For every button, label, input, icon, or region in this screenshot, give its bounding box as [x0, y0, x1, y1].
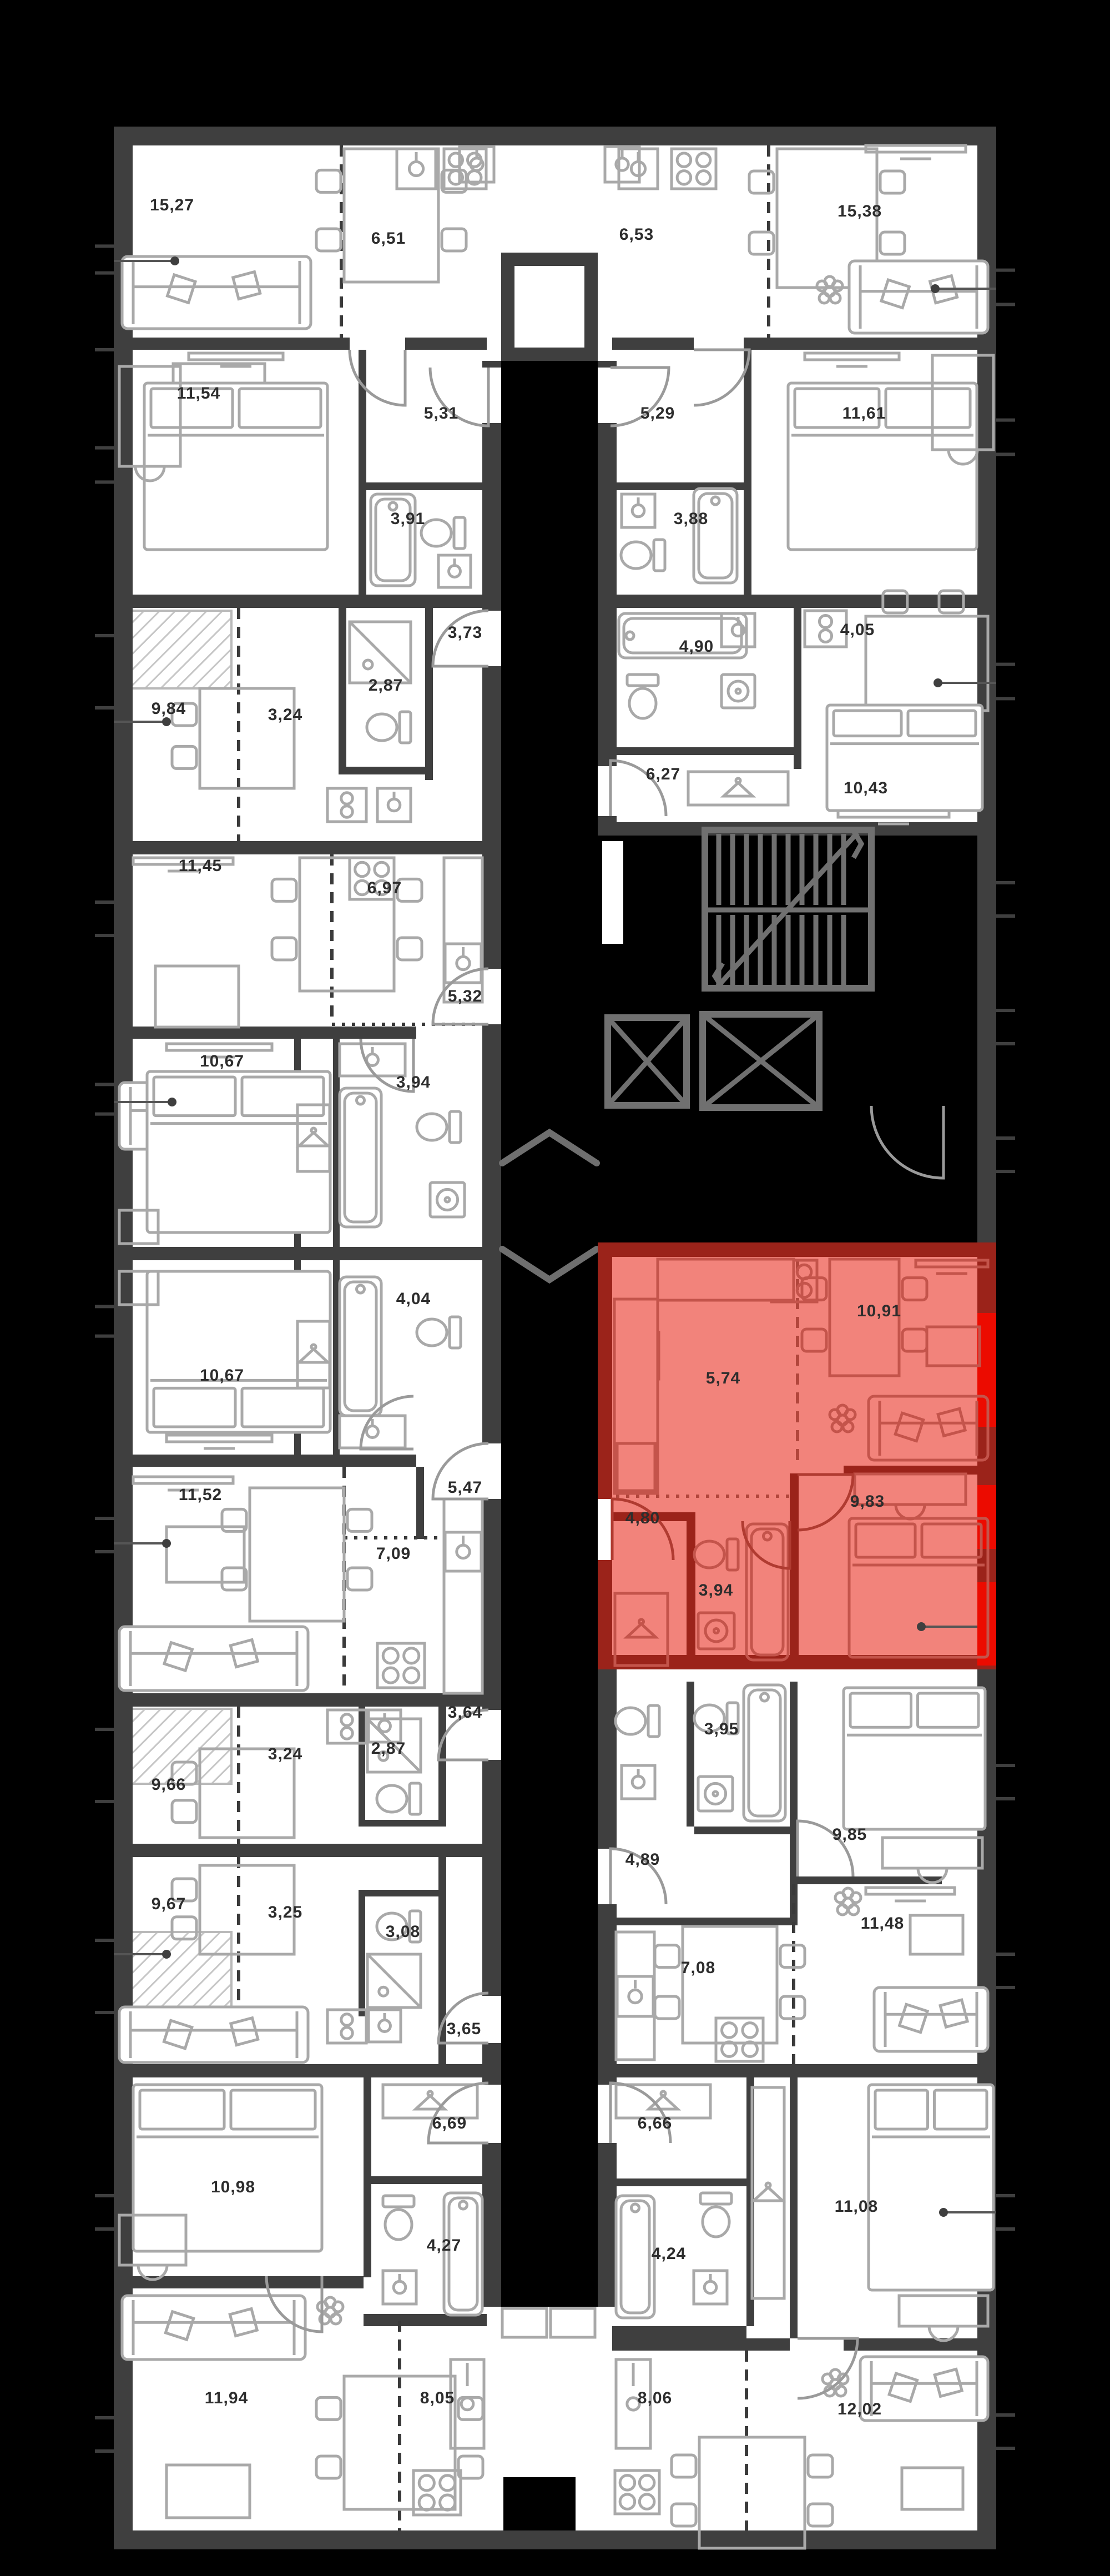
room-area-label: 10,43 — [844, 779, 888, 798]
room-area-label: 4,27 — [427, 2236, 461, 2255]
room-area-label: 5,31 — [424, 404, 458, 423]
room-area-label: 5,32 — [448, 987, 482, 1006]
room-area-label: 4,04 — [396, 1290, 431, 1309]
room-area-label: 5,47 — [448, 1478, 482, 1497]
highlighted-apartment[interactable] — [598, 1242, 996, 1668]
room-area-label: 6,27 — [646, 765, 680, 784]
room-area-label: 3,24 — [268, 1745, 302, 1764]
room-area-label: 3,65 — [447, 2020, 481, 2039]
room-area-label: 10,67 — [200, 1052, 244, 1071]
room-area-label: 9,67 — [152, 1895, 186, 1914]
room-area-label: 10,67 — [200, 1366, 244, 1385]
room-area-label: 2,87 — [369, 676, 403, 695]
room-area-label: 11,52 — [179, 1486, 222, 1505]
room-area-label: 2,87 — [371, 1739, 406, 1758]
room-area-label: 6,53 — [619, 225, 654, 244]
room-area-label: 11,48 — [861, 1914, 904, 1933]
room-area-label: 9,85 — [833, 1825, 867, 1844]
room-area-label: 7,09 — [376, 1544, 411, 1563]
room-area-label: 3,88 — [674, 510, 708, 529]
room-area-label: 10,98 — [211, 2178, 255, 2197]
room-area-label: 11,61 — [842, 404, 886, 423]
room-area-label: 9,84 — [152, 700, 186, 718]
room-area-label: 6,51 — [371, 229, 406, 248]
room-area-label: 12,02 — [837, 2400, 882, 2419]
room-area-label: 6,66 — [638, 2114, 672, 2133]
room-area-label: 3,95 — [704, 1720, 739, 1739]
room-area-label: 11,08 — [835, 2197, 878, 2216]
room-area-label: 11,54 — [177, 384, 220, 403]
room-area-label: 3,08 — [386, 1923, 420, 1941]
room-area-label: 3,24 — [268, 706, 302, 724]
room-area-label: 15,27 — [150, 196, 194, 215]
room-area-label: 3,25 — [268, 1903, 302, 1922]
room-area-label: 8,05 — [420, 2389, 455, 2408]
room-area-label: 3,94 — [396, 1073, 431, 1092]
room-area-label: 3,73 — [448, 623, 482, 642]
room-area-label: 6,69 — [432, 2114, 467, 2133]
room-area-label: 4,90 — [679, 637, 714, 656]
room-area-label: 8,06 — [638, 2389, 672, 2408]
room-area-label: 4,05 — [840, 621, 875, 640]
room-area-label: 15,38 — [837, 202, 882, 221]
room-area-label: 11,45 — [179, 857, 222, 876]
room-area-label: 6,97 — [367, 879, 402, 898]
room-area-label: 11,94 — [205, 2389, 248, 2408]
room-area-label: 7,08 — [681, 1959, 715, 1978]
room-area-label: 5,29 — [640, 404, 675, 423]
room-area-label: 3,64 — [448, 1703, 482, 1722]
room-area-label: 9,66 — [152, 1775, 186, 1794]
floor-plan-canvas: 15,276,516,5315,3811,545,315,2911,613,91… — [0, 0, 1110, 2576]
room-area-label: 3,91 — [391, 510, 425, 529]
room-area-label: 4,89 — [625, 1850, 660, 1869]
room-area-label: 4,24 — [652, 2245, 686, 2263]
